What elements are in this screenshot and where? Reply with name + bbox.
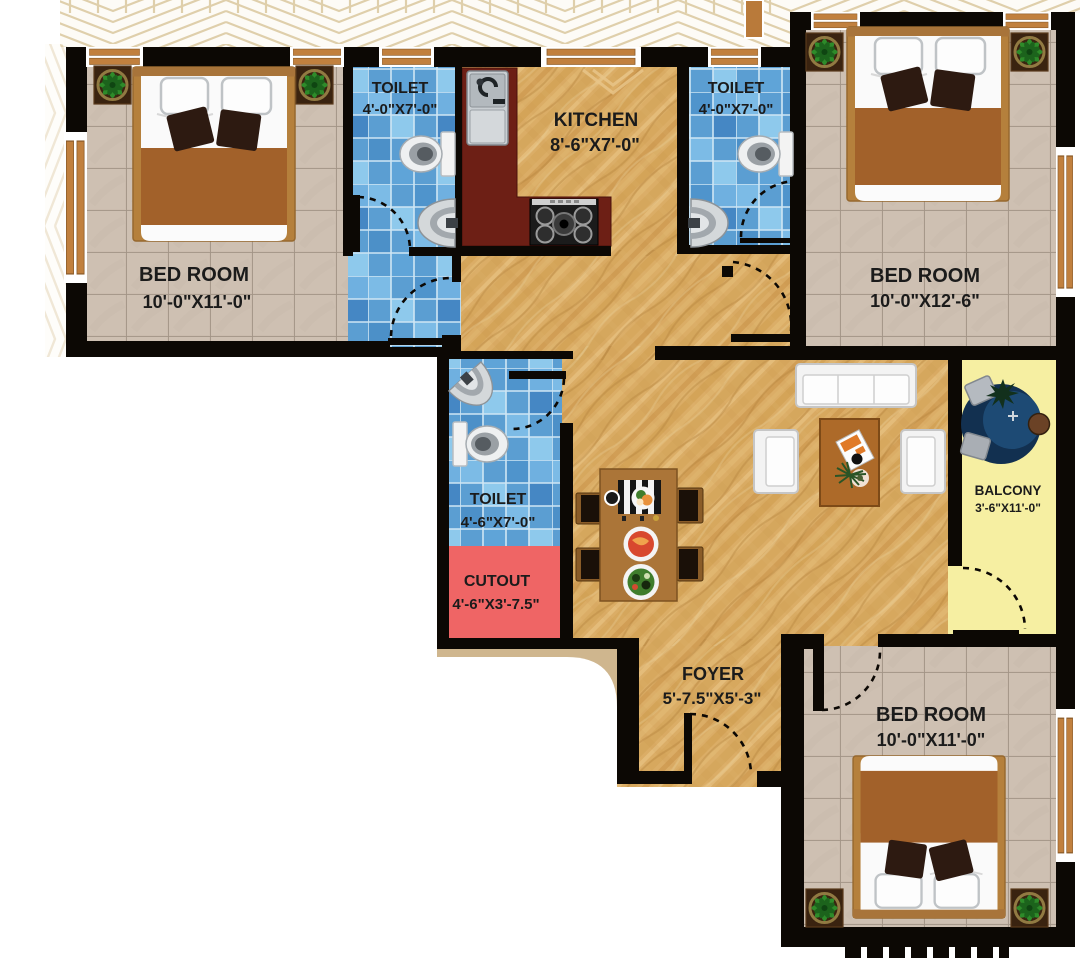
- svg-text:BED ROOM: BED ROOM: [139, 264, 249, 286]
- svg-text:CUTOUT: CUTOUT: [464, 573, 531, 590]
- svg-text:BALCONY: BALCONY: [975, 483, 1042, 498]
- svg-text:BED ROOM: BED ROOM: [876, 704, 986, 726]
- svg-text:5'-7.5"X5'-3": 5'-7.5"X5'-3": [663, 689, 762, 708]
- svg-text:TOILET: TOILET: [708, 80, 765, 97]
- svg-text:4'-0"X7'-0": 4'-0"X7'-0": [699, 101, 774, 118]
- svg-text:8'-6"X7'-0": 8'-6"X7'-0": [550, 135, 640, 155]
- svg-text:4'-6"X7'-0": 4'-6"X7'-0": [461, 514, 536, 531]
- svg-text:TOILET: TOILET: [372, 80, 429, 97]
- svg-text:10'-0"X11'-0": 10'-0"X11'-0": [143, 292, 252, 312]
- svg-text:4'-0"X7'-0": 4'-0"X7'-0": [363, 101, 438, 118]
- svg-text:BED ROOM: BED ROOM: [870, 265, 980, 287]
- svg-text:TOILET: TOILET: [470, 491, 527, 508]
- svg-text:4'-6"X3'-7.5": 4'-6"X3'-7.5": [452, 596, 539, 613]
- svg-text:10'-0"X11'-0": 10'-0"X11'-0": [877, 730, 986, 750]
- svg-text:KITCHEN: KITCHEN: [554, 110, 638, 131]
- svg-text:3'-6"X11'-0": 3'-6"X11'-0": [975, 501, 1041, 515]
- svg-text:FOYER: FOYER: [682, 664, 744, 684]
- svg-text:10'-0"X12'-6": 10'-0"X12'-6": [870, 291, 980, 311]
